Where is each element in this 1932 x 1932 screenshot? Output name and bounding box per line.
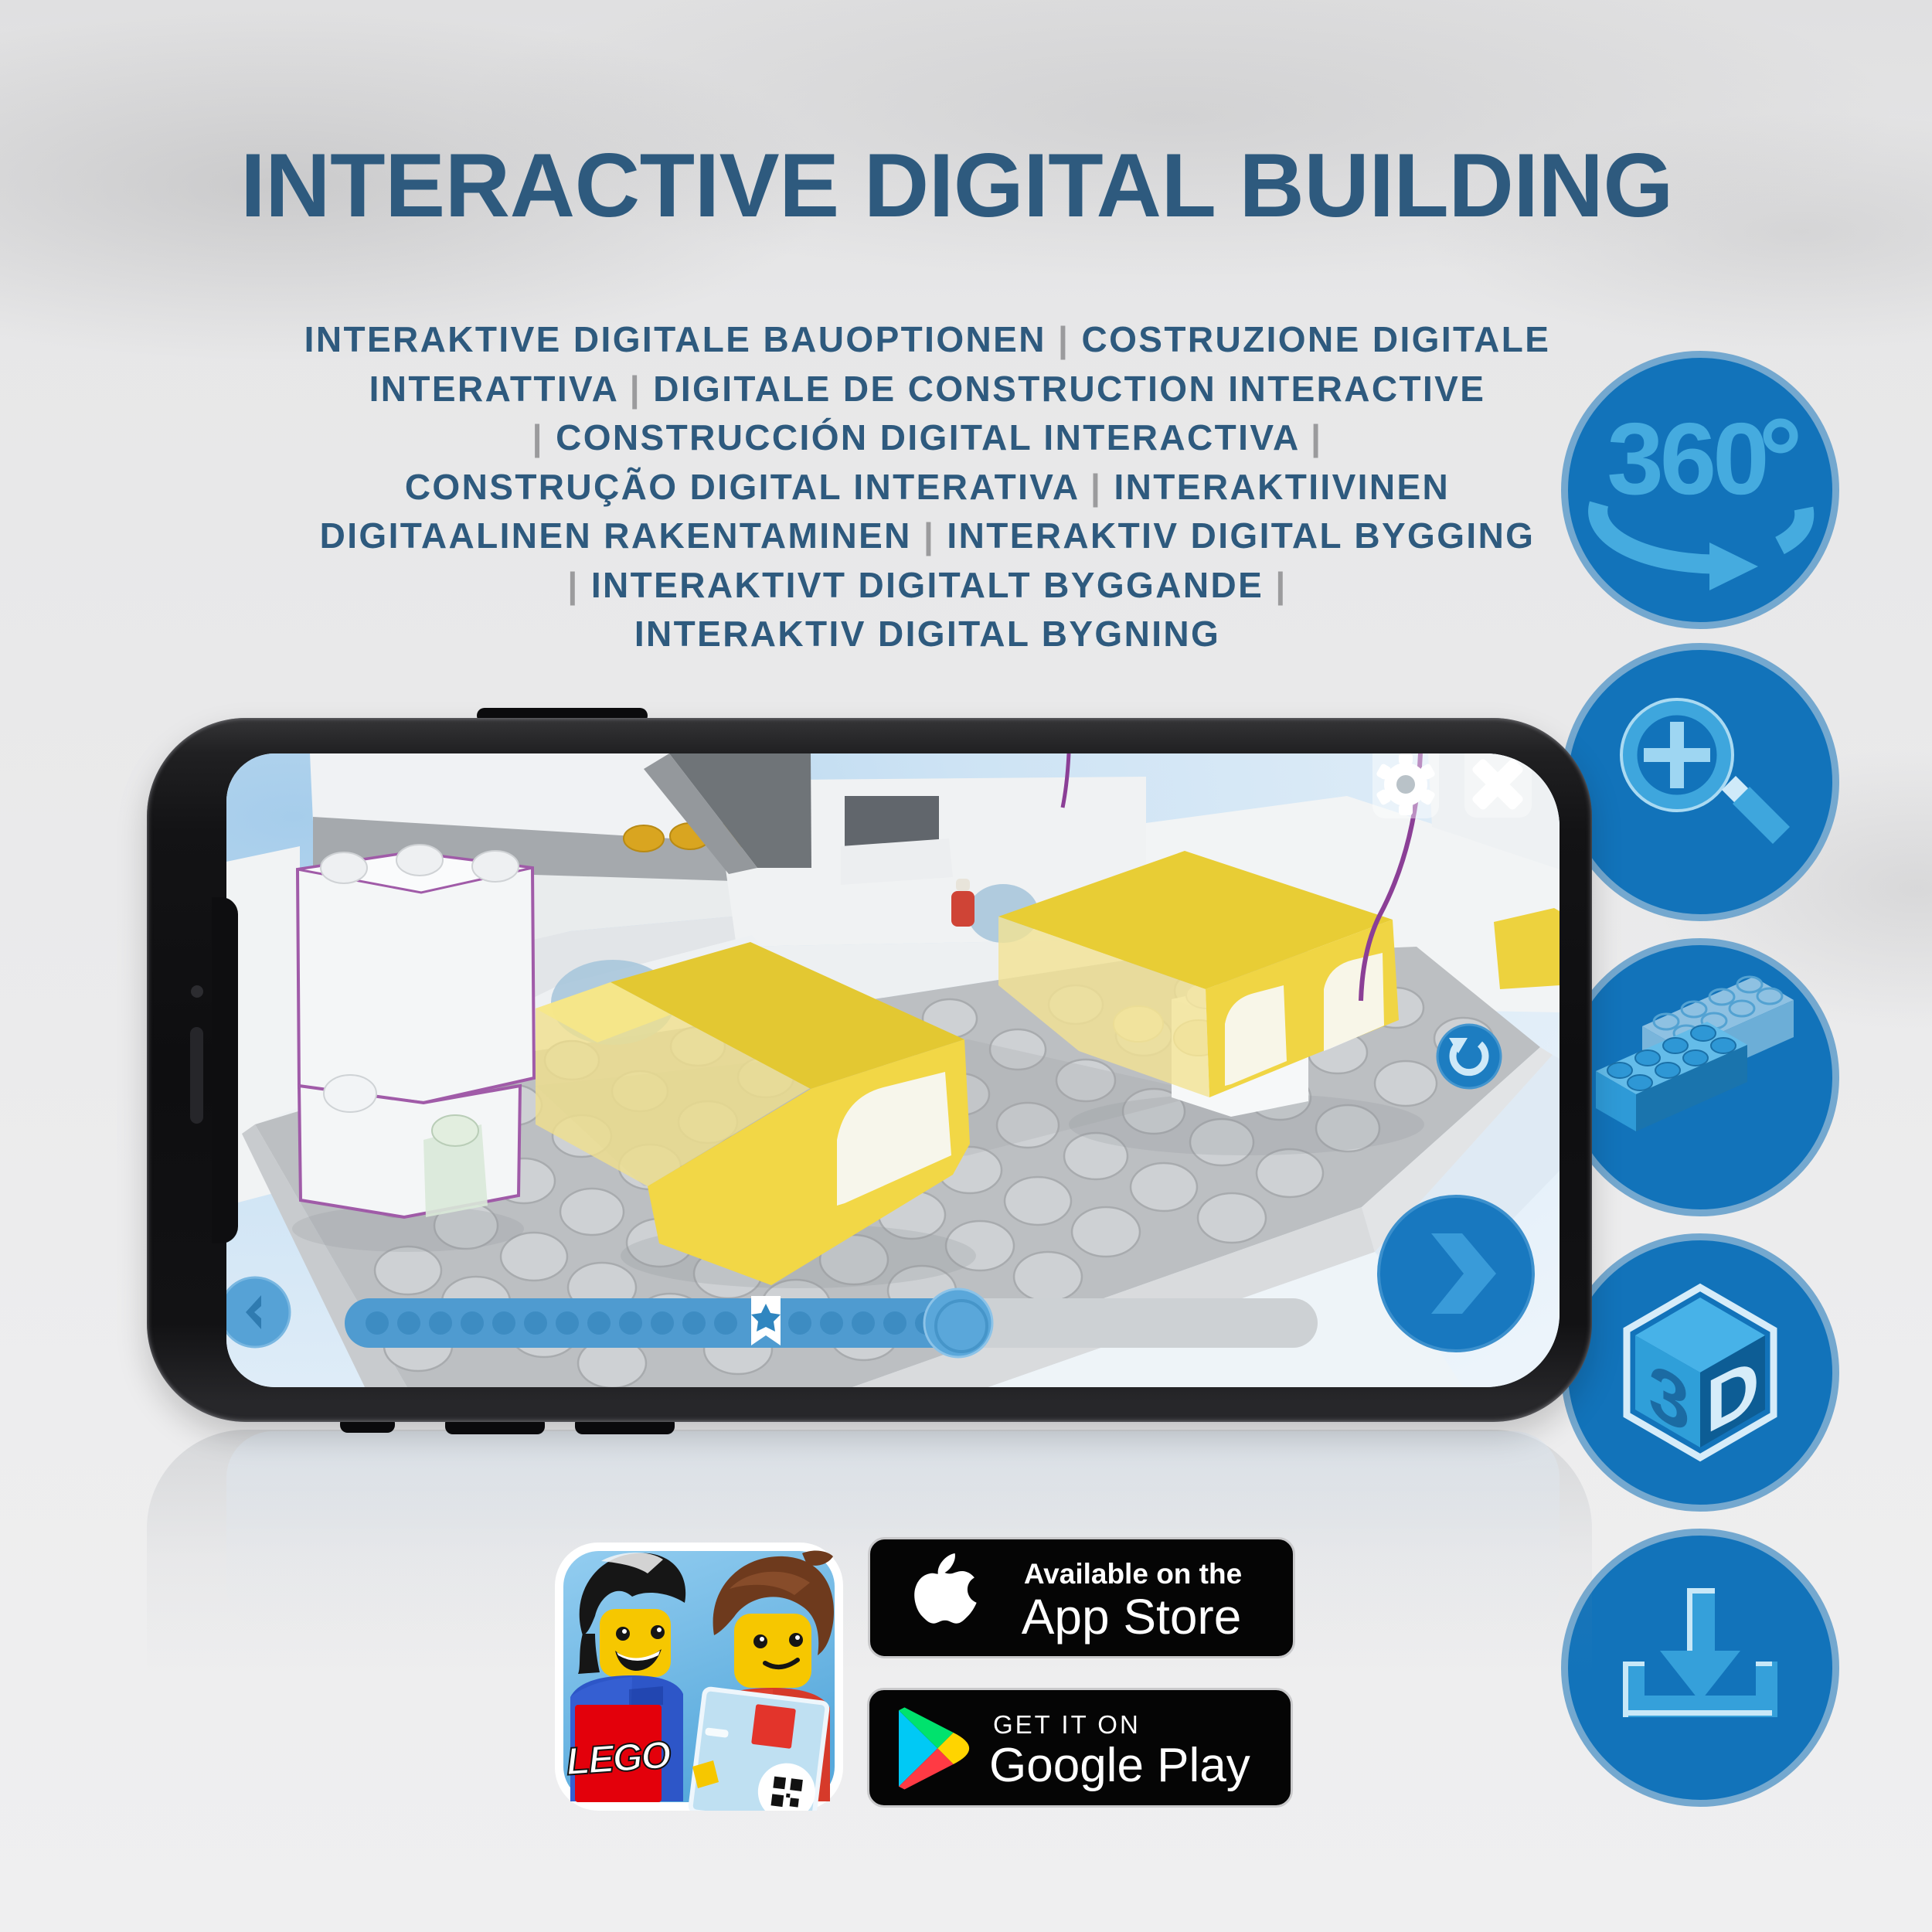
svg-text:360: 360 [1607, 402, 1765, 515]
svg-text:GET IT ON: GET IT ON [993, 1710, 1141, 1739]
svg-text:App Store: App Store [1022, 1589, 1242, 1645]
svg-text:LEGO: LEGO [565, 1733, 672, 1783]
svg-text:Google Play: Google Play [989, 1739, 1250, 1792]
svg-text:Available on the: Available on the [1024, 1558, 1242, 1590]
